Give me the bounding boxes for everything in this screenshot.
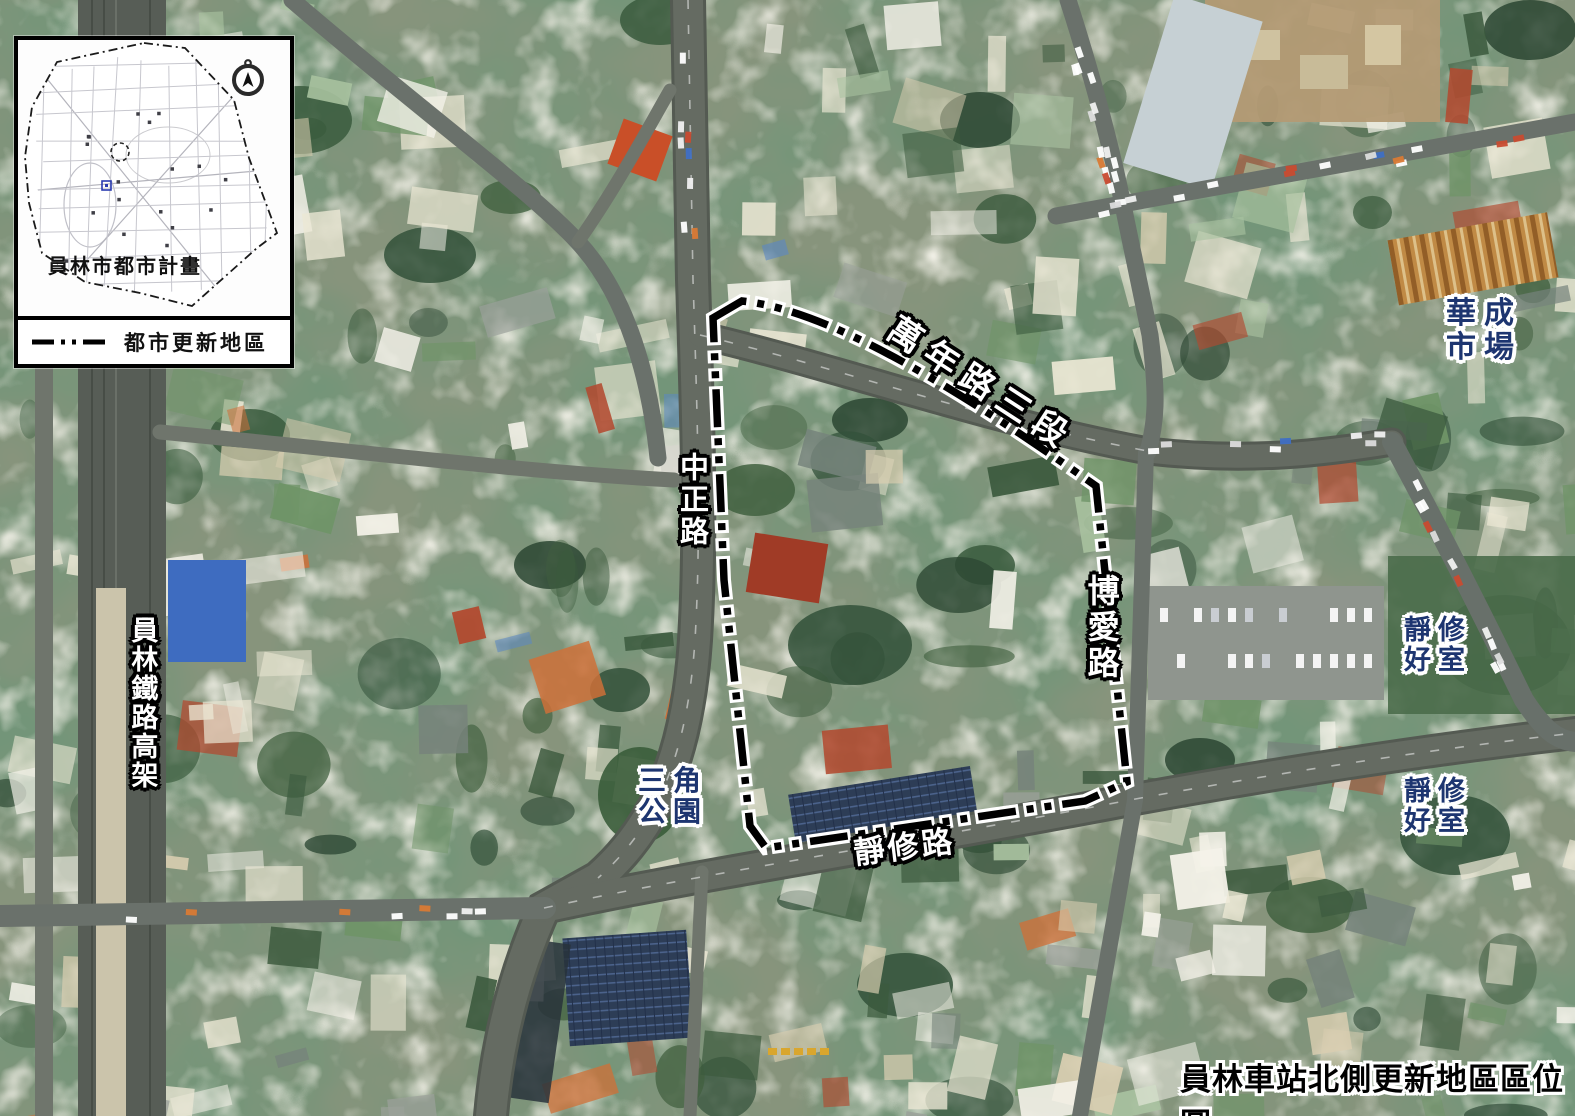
inset-map: 員林市都市計畫 都市更新地區 (14, 36, 294, 368)
map-caption: 員林車站北側更新地區區位圖 (1180, 1054, 1575, 1116)
renewal-boundary-legend-line (30, 337, 110, 347)
solar-roof-2 (562, 930, 693, 1046)
inset-title: 員林市都市計畫 (48, 250, 202, 279)
blue-roof-building (168, 560, 246, 662)
north-compass-icon (234, 60, 262, 94)
elevated-rail-deck (96, 588, 126, 1116)
red-roof-building (746, 533, 828, 604)
inset-legend: 都市更新地區 (18, 316, 290, 364)
inset-city-plan: 員林市都市計畫 (18, 40, 290, 316)
satellite-map: 萬年路三段 中正路 博愛路 靜修路 員林鐵路高架 華成 市場 三角 公園 靜修 … (0, 0, 1575, 1116)
parking-lot (1148, 586, 1384, 700)
legend-label: 都市更新地區 (124, 327, 268, 357)
